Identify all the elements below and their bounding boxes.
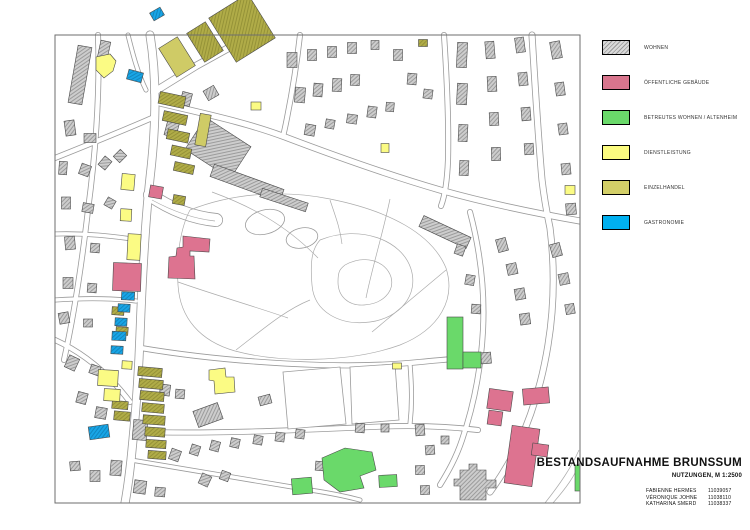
legend-label: BETREUTES WOHNEN / ALTENHEIM (644, 115, 737, 121)
credit-row: KATHARINA SMERD 11038337 (646, 501, 742, 508)
legend-item-gastronomie: GASTRONOMIE (602, 215, 747, 230)
legend-swatch-oeffentliche-gebaeude (602, 75, 630, 90)
legend-item-einzelhandel: EINZELHANDEL (602, 180, 747, 195)
legend-item-betreutes-wohnen: BETREUTES WOHNEN / ALTENHEIM (602, 110, 747, 125)
sheet-subtitle: NUTZUNGEN, M 1:2500 (412, 473, 742, 479)
legend-swatch-dienstleistung (602, 145, 630, 160)
sheet-title: BESTANDSAUFNAHME BRUNSSUM (412, 457, 742, 469)
legend-label: ÖFFENTLICHE GEBÄUDE (644, 80, 709, 86)
plan-sheet: WOHNEN ÖFFENTLICHE GEBÄUDE BETREUTES WOH… (0, 0, 750, 530)
legend-label: WOHNEN (644, 45, 668, 51)
legend: WOHNEN ÖFFENTLICHE GEBÄUDE BETREUTES WOH… (602, 40, 747, 250)
legend-swatch-einzelhandel (602, 180, 630, 195)
credit-name: KATHARINA SMERD (646, 501, 708, 508)
legend-swatch-wohnen (602, 40, 630, 55)
legend-item-oeffentliche-gebaeude: ÖFFENTLICHE GEBÄUDE (602, 75, 747, 90)
legend-swatch-betreutes-wohnen (602, 110, 630, 125)
legend-label: DIENSTLEISTUNG (644, 150, 691, 156)
legend-swatch-gastronomie (602, 215, 630, 230)
title-block: BESTANDSAUFNAHME BRUNSSUM NUTZUNGEN, M 1… (412, 457, 742, 510)
legend-item-wohnen: WOHNEN (602, 40, 747, 55)
legend-item-dienstleistung: DIENSTLEISTUNG (602, 145, 747, 160)
credit-id: 11038337 (708, 501, 742, 508)
credits: FABIENNE HERMES 11039057 VÉRONIQUE JOHNE… (646, 488, 742, 508)
legend-label: EINZELHANDEL (644, 185, 685, 191)
legend-label: GASTRONOMIE (644, 220, 684, 226)
